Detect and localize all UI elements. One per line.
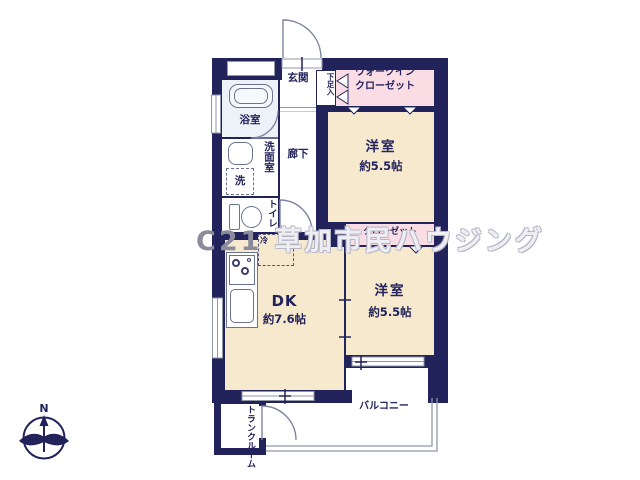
- trunk-label: トランクルーム: [228, 405, 256, 449]
- stove-burner-small: [247, 258, 251, 262]
- genkan-step-line: [280, 107, 316, 108]
- wall-trunk-left: [214, 396, 221, 455]
- wic-label-line1: ウォークイン: [336, 67, 434, 79]
- genkan-label: 玄関: [280, 72, 316, 84]
- wall-bottom-bedroom2: [344, 355, 448, 368]
- balcony-label: バルコニー: [336, 401, 432, 413]
- compass-north-label: N: [39, 402, 48, 415]
- genkan-step-line2: [280, 111, 316, 112]
- compass-north-arrow: [40, 415, 49, 426]
- dk-label: DK: [225, 293, 344, 310]
- wall-under-wic: [328, 106, 448, 112]
- entrance-doorway: [282, 59, 322, 68]
- wic-label-line2: クローゼット: [336, 81, 434, 93]
- bathtub-inner: [234, 88, 268, 104]
- wall-trunk-stub-bottom: [259, 438, 266, 455]
- laundry-label: 洗: [226, 175, 254, 187]
- room-bedroom2: [346, 247, 434, 355]
- wall-corridor-right: [316, 104, 328, 232]
- compass-wing: [19, 434, 69, 446]
- wall-right-pillar: [428, 368, 434, 403]
- washbasin: [228, 142, 253, 165]
- corridor-label: 廊下: [280, 148, 316, 160]
- stove-burner: [232, 259, 240, 267]
- shoebox-label: 下足入: [319, 73, 334, 105]
- wall-left-upper: [212, 58, 222, 232]
- stove-burner: [241, 267, 249, 275]
- bedroom2-label: 洋室: [346, 284, 434, 300]
- line-bath-washroom: [222, 137, 280, 139]
- bedroom2-size: 約5.5帖: [346, 306, 434, 319]
- bedroom1-size: 約5.5帖: [328, 160, 434, 173]
- watermark-company: 草加市民ハウジング: [275, 226, 545, 257]
- trunk-door-arc: [262, 406, 296, 440]
- line-washroom-toilet: [222, 196, 280, 198]
- wall-trunk-stub-top: [259, 396, 266, 406]
- trunk-label-line1: トランク: [245, 405, 255, 441]
- entrance-door-arc: [283, 20, 321, 58]
- floorplan-canvas: N 玄関 下足入 ウォークイン クローゼット 浴室 洗面室 洗 トイレ 廊下 冷…: [0, 0, 640, 480]
- compass: N: [19, 402, 69, 459]
- watermark-brand: C21: [196, 226, 262, 257]
- watermark: C21 草加市民ハウジング: [196, 219, 545, 258]
- trunk-label-line2: ルーム: [245, 441, 255, 468]
- washroom-label: 洗面室: [259, 141, 275, 195]
- dk-size: 約7.6帖: [225, 313, 344, 326]
- meter-box: [227, 61, 275, 76]
- bedroom1-label: 洋室: [328, 140, 434, 156]
- bath-label: 浴室: [222, 114, 278, 126]
